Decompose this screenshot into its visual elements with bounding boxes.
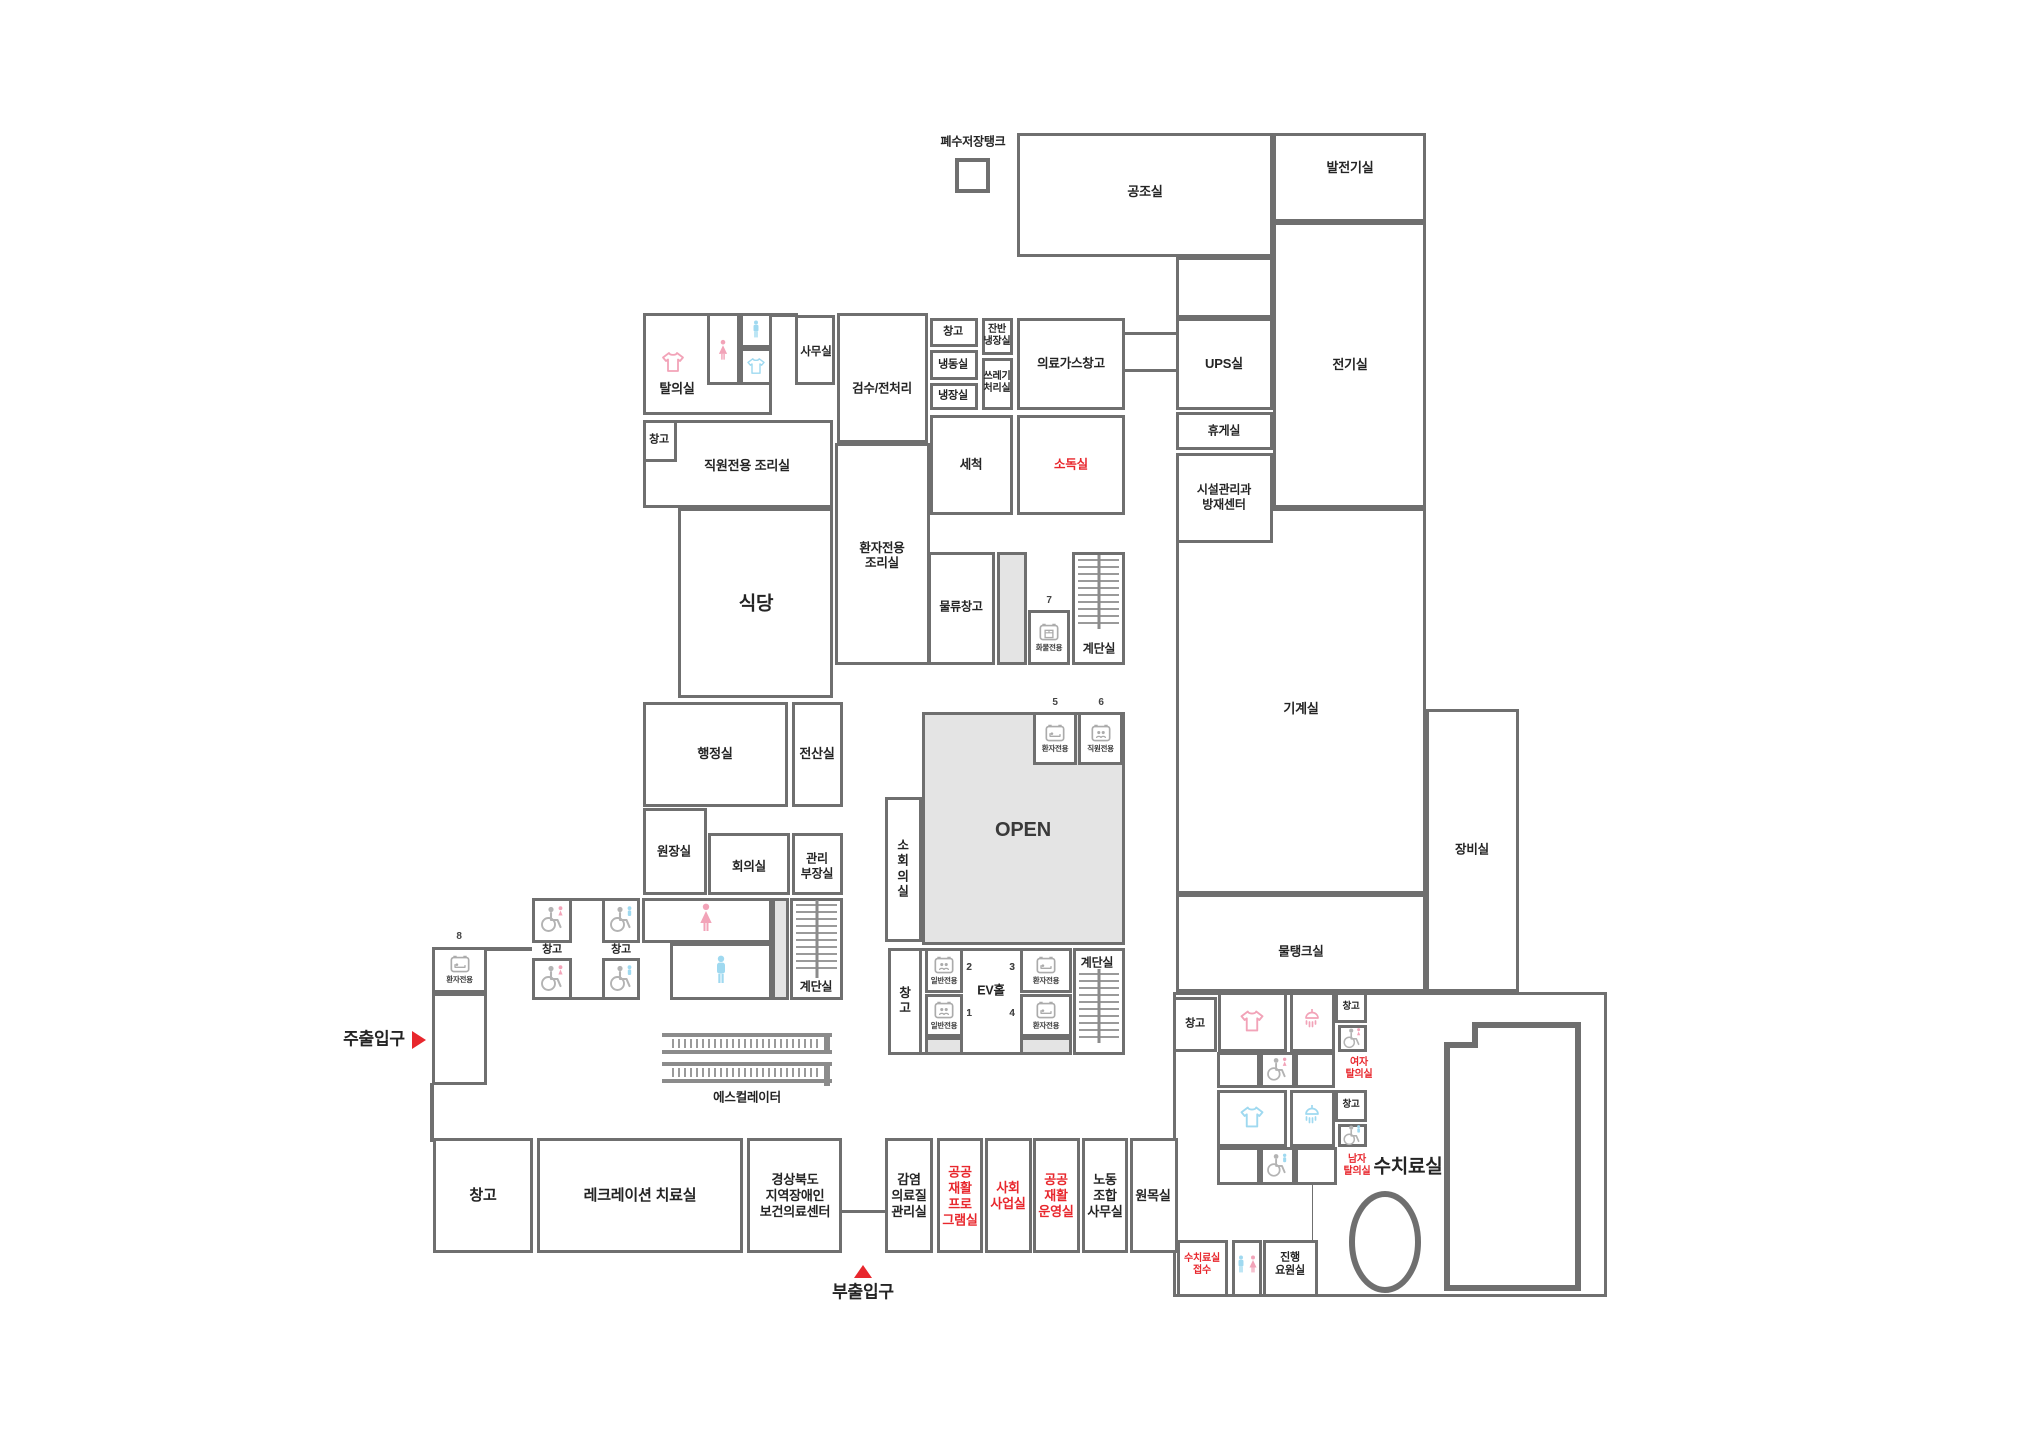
wc-storage-label-1: 창고 xyxy=(542,943,562,956)
elevator-label: 환자전용 xyxy=(1033,975,1059,986)
escalator-rail xyxy=(824,1062,830,1086)
label-dept-head-office: 관리 부장실 xyxy=(801,851,834,880)
label-gb-disability-center: 경상북도 지역장애인 보건의료센터 xyxy=(760,1172,831,1220)
wall-segment xyxy=(572,997,604,1000)
wall-segment xyxy=(1125,369,1178,372)
wall-segment xyxy=(772,313,798,317)
shower-icon xyxy=(1301,1104,1323,1130)
label-wing-storage-2: 창고 xyxy=(1342,1001,1359,1013)
people-elevator-icon xyxy=(934,1001,954,1019)
label-stair-room-west: 계단실 xyxy=(800,980,833,995)
elevator-4: 환자전용 xyxy=(1020,994,1072,1037)
escalator-label: 에스컬레이터 xyxy=(713,1090,781,1105)
elevator-2-number: 2 xyxy=(966,962,971,974)
elevator-6-number: 6 xyxy=(1098,697,1103,709)
label-director-office: 원장실 xyxy=(657,844,691,859)
elevator-8-number: 8 xyxy=(456,931,461,943)
label-stair-room-ev: 계단실 xyxy=(1081,956,1114,971)
elevator-4-number: 4 xyxy=(1009,1008,1014,1020)
shirt-icon xyxy=(1238,1009,1265,1032)
ev-hall-label: EV홀 xyxy=(977,983,1005,998)
label-event-staff-room: 진행 요원실 xyxy=(1275,1252,1305,1279)
male-icon xyxy=(714,955,728,987)
entrance-arrow-icon xyxy=(854,1265,872,1278)
room-wing-cell-a xyxy=(1217,1052,1260,1088)
people-elevator-icon xyxy=(934,956,954,974)
wall-segment xyxy=(842,1210,886,1213)
label-meeting-room: 회의실 xyxy=(732,859,766,874)
floor-plan: 환자전용화물전용환자전용직원전용일반전용일반전용환자전용환자전용 주출입구부출입… xyxy=(0,0,2025,1432)
wheelchair-icon xyxy=(608,905,634,933)
label-labor-union-office: 노동 조합 사무실 xyxy=(1087,1172,1122,1220)
stair-rail xyxy=(1097,555,1100,629)
elevator-3: 환자전용 xyxy=(1020,948,1072,993)
elevator-label: 일반전용 xyxy=(931,1020,957,1031)
escalator-steps xyxy=(672,1068,818,1077)
escalator-rail xyxy=(662,1033,832,1037)
elevator-label: 일반전용 xyxy=(931,975,957,986)
shaft-ev-b xyxy=(1020,1037,1072,1055)
label-machine-room: 기계실 xyxy=(1283,701,1318,717)
escalator-rail xyxy=(824,1033,830,1054)
label-wing-storage-1: 창고 xyxy=(1185,1017,1205,1030)
wall-segment xyxy=(1312,1185,1313,1240)
label-staff-kitchen: 직원전용 조리실 xyxy=(704,458,790,474)
entrance-label: 부출입구 xyxy=(832,1283,894,1304)
elevator-5-number: 5 xyxy=(1052,697,1057,709)
room-inspection-preprocess xyxy=(837,313,928,443)
label-computing-room: 전산실 xyxy=(799,746,834,762)
bed-elevator-icon xyxy=(450,955,470,973)
label-generator-room: 발전기실 xyxy=(1326,160,1373,176)
label-hvac-room: 공조실 xyxy=(1127,184,1162,200)
wheelchair-icon xyxy=(608,964,634,992)
elevator-label: 환자전용 xyxy=(1033,1020,1059,1031)
elevator-1-number: 1 xyxy=(966,1008,971,1020)
wheelchair-icon xyxy=(539,905,565,933)
bed-elevator-icon xyxy=(1036,956,1056,974)
wheelchair-icon xyxy=(1265,1152,1288,1177)
female-icon xyxy=(1248,1255,1257,1275)
male-icon xyxy=(1237,1255,1246,1275)
wall-segment xyxy=(1125,332,1178,335)
stairs-ev xyxy=(1079,973,1119,1039)
entrance-arrow-icon xyxy=(412,1031,426,1049)
label-leftover-fridge: 잔반 냉장실 xyxy=(984,324,1011,348)
label-freezer-room: 냉동실 xyxy=(938,358,968,371)
stair-rail xyxy=(1098,969,1101,1043)
label-sterilization-room: 소독실 xyxy=(1054,457,1088,472)
oval-pool xyxy=(1352,1194,1418,1290)
elevator-7: 화물전용 xyxy=(1028,610,1070,665)
elevator-7-number: 7 xyxy=(1046,595,1051,607)
escalator-rail xyxy=(662,1079,832,1083)
label-social-work-room: 사회 사업실 xyxy=(990,1180,1025,1212)
label-storage-sw: 창고 xyxy=(469,1187,496,1205)
label-chaplain-room: 원목실 xyxy=(1135,1188,1170,1204)
label-stair-room-upper: 계단실 xyxy=(1083,642,1116,657)
room-room-unlabeled xyxy=(1176,257,1273,318)
men-locker-label: 남자 탈의실 xyxy=(1344,1154,1371,1178)
stairs-west xyxy=(796,904,837,974)
shirt-icon xyxy=(660,351,686,373)
waste-tank-label: 폐수저장탱크 xyxy=(940,135,1005,150)
label-public-rehab-program-room: 공공 재활 프로 그램실 xyxy=(942,1164,977,1227)
label-patient-kitchen: 환자전용 조리실 xyxy=(859,541,904,572)
label-admin-office: 행정실 xyxy=(697,746,732,762)
male-icon xyxy=(752,320,761,340)
wall-segment xyxy=(572,898,604,901)
elevator-5: 환자전용 xyxy=(1033,712,1077,765)
shirt-icon xyxy=(746,357,767,375)
wheelchair-icon xyxy=(1265,1056,1288,1081)
label-wing-storage-3: 창고 xyxy=(1342,1099,1359,1111)
elevator-1: 일반전용 xyxy=(925,994,963,1037)
elevator-3-number: 3 xyxy=(1009,962,1014,974)
rect-pool xyxy=(1447,1025,1578,1288)
room-generator-room xyxy=(1273,133,1426,222)
people-elevator-icon xyxy=(1091,724,1111,742)
stair-rail xyxy=(815,900,818,978)
shaft-logistics xyxy=(997,552,1027,665)
shower-icon xyxy=(1301,1008,1323,1034)
bed-elevator-icon xyxy=(1036,1001,1056,1019)
label-inspection-preprocess: 검수/전처리 xyxy=(852,381,912,396)
wall-segment xyxy=(922,1052,1023,1055)
label-hydro-reception: 수치료실 접수 xyxy=(1184,1253,1220,1277)
female-icon xyxy=(699,903,714,935)
label-facility-mgmt-center: 시설관리과 방재센터 xyxy=(1197,482,1251,511)
wall-segment xyxy=(487,947,532,951)
label-ups-room: UPS실 xyxy=(1205,356,1243,372)
shirt-icon xyxy=(1238,1105,1265,1128)
bed-elevator-icon xyxy=(1045,724,1065,742)
label-waste-room: 쓰레기 처리실 xyxy=(984,371,1011,395)
label-fridge-room: 냉장실 xyxy=(938,389,968,402)
cargo-elevator-icon xyxy=(1039,623,1059,641)
label-staff-locker-room: 탈의실 xyxy=(659,381,694,397)
escalator-rail xyxy=(662,1062,832,1066)
room-water-tank-room xyxy=(1176,894,1426,992)
escalator xyxy=(662,1033,832,1087)
escalator-rail xyxy=(662,1050,832,1054)
label-open-atrium: OPEN xyxy=(995,818,1051,842)
label-equipment-room: 장비실 xyxy=(1455,842,1489,857)
elevator-label: 화물전용 xyxy=(1036,642,1062,653)
shaft-west xyxy=(772,898,789,1000)
label-storage-small-left: 창고 xyxy=(649,433,669,446)
label-medical-gas-storage: 의료가스창고 xyxy=(1037,356,1105,371)
room-sw-elevator-lobby xyxy=(432,993,487,1085)
room-waste-water-tank xyxy=(955,158,990,193)
elevator-label: 직원전용 xyxy=(1087,743,1113,754)
room-wing-cell-b xyxy=(1295,1052,1335,1088)
elevator-label: 환자전용 xyxy=(1042,743,1068,754)
elevator-2: 일반전용 xyxy=(925,948,963,993)
escalator-steps xyxy=(672,1039,818,1048)
stairs-upper xyxy=(1078,559,1119,625)
room-wing-cell-c xyxy=(1217,1147,1260,1185)
female-icon xyxy=(718,339,729,362)
elevator-8: 환자전용 xyxy=(432,947,487,993)
elevator-6: 직원전용 xyxy=(1078,712,1123,765)
label-public-rehab-operation-room: 공공 재활 운영실 xyxy=(1038,1172,1073,1220)
label-recreation-room: 레크레이션 치료실 xyxy=(584,1187,697,1205)
label-storage-ev-left: 창 고 xyxy=(899,986,910,1017)
label-small-meeting-room: 소 회 의 실 xyxy=(897,839,908,900)
label-water-tank-room: 물탱크실 xyxy=(1278,944,1323,959)
wall-segment xyxy=(430,1083,434,1142)
label-logistics-storage: 물류창고 xyxy=(939,600,982,615)
hydrotherapy-label: 수치료실 xyxy=(1373,1155,1442,1178)
wc-storage-label-2: 창고 xyxy=(611,943,631,956)
entrance-label: 주출입구 xyxy=(343,1030,405,1051)
elevator-label: 환자전용 xyxy=(446,974,472,985)
label-infection-quality-room: 감염 의료질 관리실 xyxy=(891,1172,926,1220)
label-washing-room: 세척 xyxy=(960,457,983,472)
label-cafeteria: 식당 xyxy=(739,592,774,615)
label-electrical-room: 전기실 xyxy=(1332,357,1367,373)
wheelchair-icon xyxy=(539,964,565,992)
label-lounge: 휴게실 xyxy=(1208,424,1241,439)
label-kitchen-storage: 창고 xyxy=(943,325,963,338)
label-office: 사무실 xyxy=(800,345,831,359)
women-locker-label: 여자 탈의실 xyxy=(1346,1057,1373,1081)
